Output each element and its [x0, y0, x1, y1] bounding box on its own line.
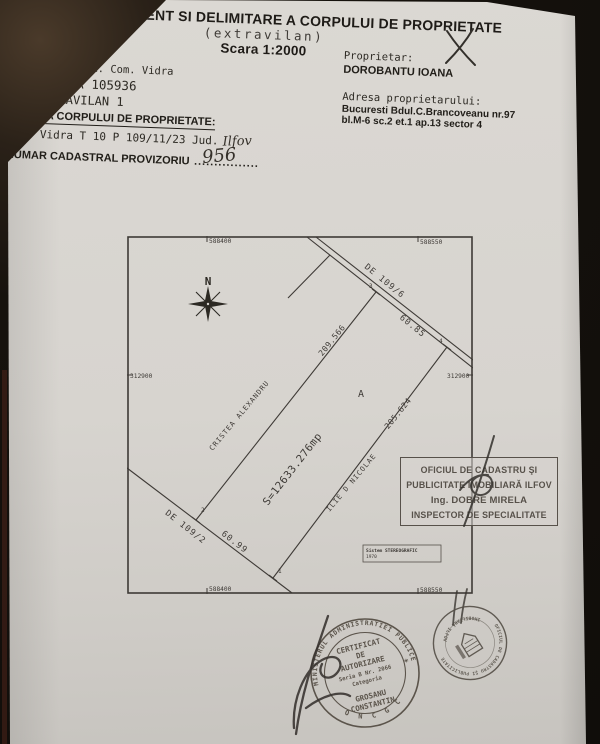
plan-lines [127, 237, 473, 593]
length-209-566-label: 209.566 [317, 323, 347, 358]
coord-bottom-left: 588400 [209, 586, 232, 593]
neighbor-cristea-label: CRISTEA ALEXANDRU [208, 379, 271, 452]
plan-frame [128, 237, 472, 593]
photo-edge-highlight [2, 370, 7, 744]
parcel-letter: A [358, 389, 364, 400]
legend-line1: Sistem STEREOGRAFIC [366, 548, 418, 554]
coord-right: 312900 [447, 373, 470, 380]
coordinate-ticks [127, 236, 473, 594]
vertex-4-label: 4 [439, 338, 443, 345]
vertex-2-label: 2 [201, 507, 205, 514]
address-printed: Com. Vidra T 10 P 109/11/23 Jud. [7, 127, 219, 148]
inspector-signature [438, 428, 518, 538]
length-60-99-label: 60.99 [219, 529, 249, 556]
length-60-85-label: 60.85 [397, 313, 427, 340]
cadastral-plan: 3 4 2 1 588400 588550 588400 588550 3129… [127, 236, 473, 594]
legend-line2: 1970 [366, 554, 377, 560]
road-de109-6-label: DE 109/6 [362, 262, 406, 301]
road-de109-2-line [127, 468, 292, 593]
neighbor-spur-line [288, 255, 330, 298]
property-info-block: JUDETUL ILFOV Teritoriul adm. Com. Vidra… [6, 44, 263, 172]
north-compass-icon: N [188, 275, 228, 322]
authorization-signature [282, 612, 392, 744]
coord-bottom-right: 588550 [420, 587, 443, 594]
svg-text:IMOBILIARĂ ILFOV: IMOBILIARĂ ILFOV [435, 607, 483, 645]
coord-left: 312900 [130, 373, 153, 380]
area-label: S=12633.276mp [261, 431, 325, 508]
vertex-1-label: 1 [278, 568, 282, 575]
scanned-document-paper: DE AMPLASAMENT SI DELIMITARE A CORPULUI … [0, 0, 600, 744]
neighbor-ilie-label: ILIE D NICOLAE [325, 452, 378, 513]
ocpi-round-stamp: OFICIUL DE CADASTRU ŞI PUBLICITATE IMOBI… [425, 598, 515, 688]
owner-info-block: Proprietar: DOROBANTU IOANA Adresa propr… [341, 50, 517, 132]
coord-top-left: 588400 [209, 238, 232, 245]
projection-legend: Sistem STEREOGRAFIC 1970 [363, 545, 441, 562]
coat-of-arms-emblem [452, 629, 483, 660]
cadastral-heading: NUMAR CADASTRAL PROVIZORIU [6, 149, 190, 168]
coord-top-right: 588550 [420, 239, 443, 246]
ocpi-stamp-ring-bottom: IMOBILIARĂ ILFOV [435, 607, 483, 645]
length-205-624-label: 205.624 [383, 396, 413, 431]
cadastral-line: NUMAR CADASTRAL PROVIZORIU .............… [6, 145, 260, 172]
cadastral-number-handwritten: 956 [201, 144, 237, 168]
road-de109-6-line2 [316, 237, 473, 360]
vertex-3-label: 3 [369, 283, 373, 290]
